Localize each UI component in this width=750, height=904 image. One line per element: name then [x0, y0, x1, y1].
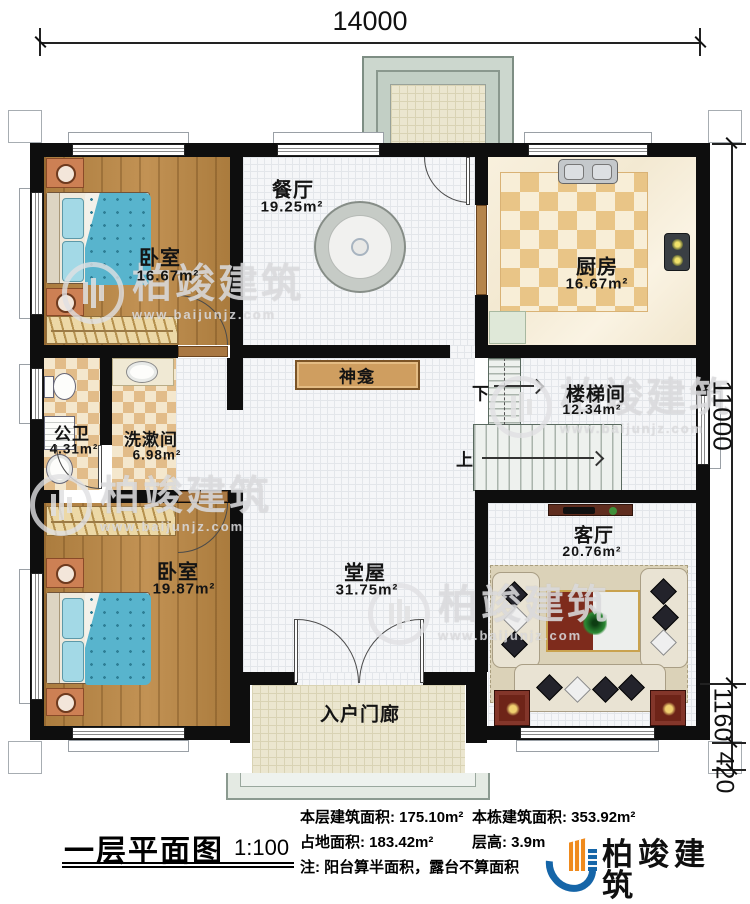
room-area: 19.87m² [153, 581, 216, 598]
brand-building-icon [569, 838, 586, 871]
decor-plant [609, 507, 617, 515]
entry-steps-inner [240, 773, 476, 787]
dimension-label-top: 14000 [290, 6, 450, 37]
wall [30, 490, 60, 503]
bed-pillow [62, 641, 84, 682]
stove [664, 233, 690, 271]
nightstand [46, 688, 84, 716]
window [520, 727, 655, 739]
hall-floor [243, 358, 475, 672]
stat-footprint: 占地面积: 183.42m² [300, 831, 433, 852]
brand-logo-icon [548, 836, 598, 884]
bed-quilt [85, 593, 151, 685]
wall [230, 672, 297, 685]
room-label: 入户门廊 [320, 700, 400, 727]
dining-table [314, 201, 406, 293]
corner-mark [8, 741, 42, 774]
table-plant [583, 611, 607, 635]
side-table-star [506, 702, 520, 716]
brand-text-block: 柏竣建筑 www.baijunjz.com [602, 839, 745, 904]
stat-value: 3.9m [511, 834, 545, 851]
wardrobe [46, 316, 178, 344]
entry-porch-floor [252, 685, 465, 773]
door-leaf [420, 619, 424, 683]
bed-pillow [62, 598, 84, 639]
room-area: 12.34m² [562, 401, 621, 417]
room-label: 卧室 [139, 242, 181, 271]
wall [488, 345, 696, 358]
window [31, 368, 43, 420]
dimension-ext [712, 143, 746, 145]
door-leaf [294, 619, 298, 683]
nightstand [46, 558, 84, 588]
burner [672, 255, 683, 266]
plan-scale: 1:100 [234, 835, 289, 861]
tv-cabinet [548, 504, 633, 516]
wall [475, 157, 488, 205]
room-area: 16.67m² [137, 268, 200, 285]
window [31, 192, 43, 315]
bed [46, 192, 150, 284]
window [277, 144, 380, 156]
bed-headboard [47, 193, 60, 283]
room-area: 6.98m² [133, 448, 182, 463]
dimension-label-right-main: 11000 [707, 374, 738, 458]
burner [672, 239, 683, 250]
door-leaf [178, 346, 228, 357]
wall [227, 358, 243, 410]
tv [563, 507, 595, 514]
side-table [650, 690, 686, 726]
wall [230, 157, 243, 358]
stat-label: 本栋建筑面积: [472, 809, 571, 826]
coffee-table [546, 590, 640, 652]
dining-table-center [351, 238, 369, 256]
bed-pillow [62, 241, 84, 282]
door-leaf [466, 157, 470, 205]
stairs-up-label: 上 [456, 446, 474, 471]
brand-building-small-icon [588, 849, 597, 871]
bed-pillow [62, 198, 84, 239]
wall [475, 490, 696, 503]
window [72, 727, 185, 739]
kitchen-sliding-door [476, 205, 487, 295]
kitchen-counter [489, 311, 526, 344]
room-area: 20.76m² [562, 543, 621, 559]
title-underline [62, 862, 294, 868]
stairs-center-dash [504, 358, 505, 425]
room-area: 4.31m² [50, 442, 99, 457]
stairs-down-label: 下 [472, 380, 490, 405]
porch-pillar [466, 685, 487, 743]
stat-floor-area: 本层建筑面积: 175.10m² [300, 806, 463, 827]
stairs-up-arrow-line [482, 457, 594, 459]
door-leaf [98, 445, 102, 489]
stat-total-area: 本栋建筑面积: 353.92m² [472, 806, 635, 827]
room-label: 神龛 [339, 363, 375, 388]
door-leaf [178, 491, 228, 502]
window [528, 144, 648, 156]
wall [423, 672, 487, 685]
floor-plan-canvas: 柏竣建筑 www.baijunjz.com 柏竣建筑 www.baijunjz.… [0, 0, 750, 904]
wall [230, 490, 243, 503]
stat-storey-height: 层高: 3.9m [472, 831, 545, 852]
brand-name: 柏竣建筑 [602, 839, 745, 901]
window [72, 144, 185, 156]
brand-logo: 柏竣建筑 www.baijunjz.com [548, 836, 744, 888]
porch-pillar [230, 685, 250, 743]
stat-value: 353.92m² [571, 809, 635, 826]
wall [243, 345, 450, 358]
nightstand [46, 158, 84, 188]
back-porch-floor [390, 84, 486, 144]
dining-hall-opening [450, 345, 475, 358]
side-table-star [662, 702, 676, 716]
side-table [494, 690, 530, 726]
wall [475, 295, 488, 358]
washroom-basin [126, 361, 158, 383]
toilet-bowl [53, 373, 76, 400]
stat-value: 183.42m² [369, 834, 433, 851]
stat-label: 本层建筑面积: [300, 809, 399, 826]
room-area: 31.75m² [336, 582, 399, 599]
wall [100, 358, 112, 445]
room-area: 16.67m² [566, 276, 629, 293]
stat-value: 175.10m² [399, 809, 463, 826]
sink-basin [592, 164, 612, 180]
room-area: 19.25m² [261, 199, 324, 216]
window-sill [68, 740, 189, 752]
window [31, 573, 43, 700]
wall [44, 345, 178, 358]
sink-basin [564, 164, 584, 180]
nightstand [46, 288, 84, 316]
wardrobe [46, 506, 176, 536]
bed-headboard [47, 593, 60, 683]
stat-note: 注: 阳台算半面积，露台不算面积 [300, 856, 519, 877]
bed [46, 592, 150, 684]
kitchen-sink [558, 159, 618, 184]
window-sill [516, 740, 659, 752]
dimension-line [40, 42, 700, 44]
wall [475, 503, 488, 672]
stat-label: 占地面积: [300, 834, 369, 851]
corner-mark [8, 110, 42, 143]
stat-label: 层高: [472, 834, 511, 851]
